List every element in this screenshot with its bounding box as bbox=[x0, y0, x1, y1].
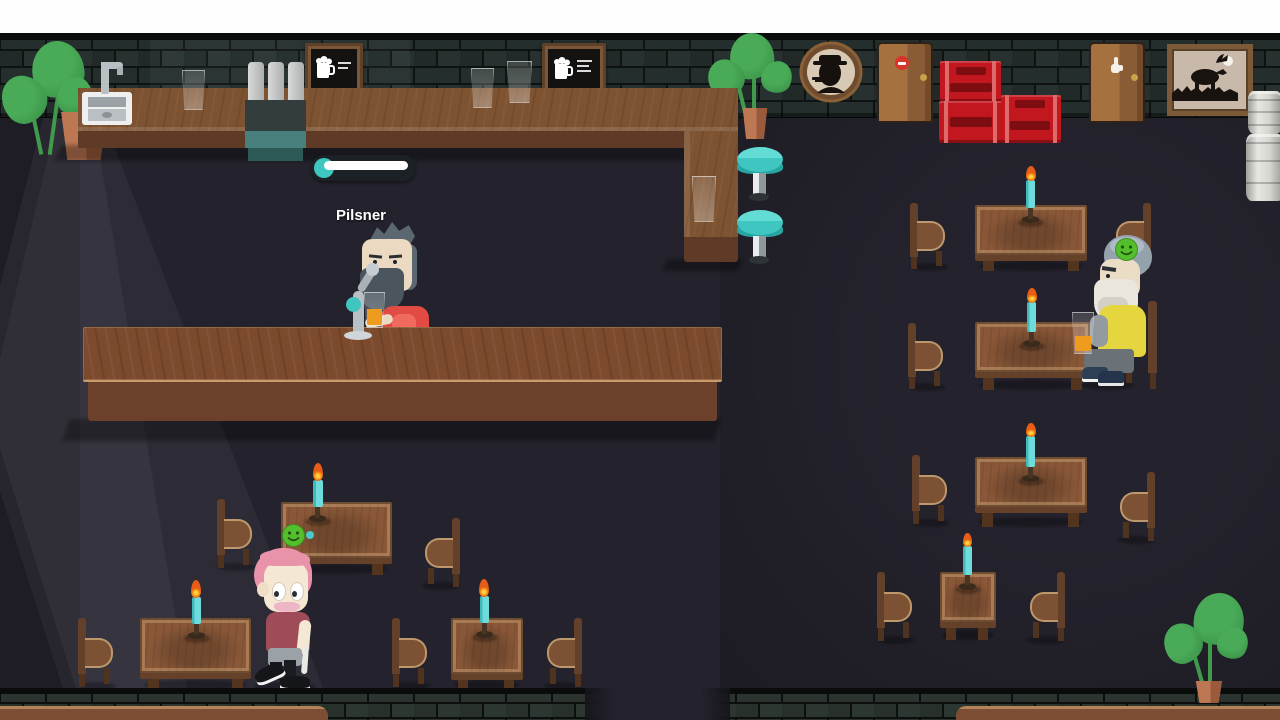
sink-basin-lower bbox=[88, 109, 126, 121]
beer-kegs[interactable] bbox=[1246, 91, 1280, 201]
floor-shade-left bbox=[0, 118, 80, 720]
empty-glass[interactable] bbox=[471, 68, 494, 108]
chair-seat bbox=[1030, 592, 1058, 622]
chair-seat bbox=[915, 341, 943, 371]
game-screen: Pilsner bbox=[0, 0, 1280, 720]
progress-fill bbox=[324, 161, 408, 170]
plant-pot bbox=[741, 108, 769, 139]
chair[interactable] bbox=[908, 323, 946, 391]
customer-beer-glass[interactable] bbox=[1072, 312, 1094, 354]
hand-icon bbox=[1108, 56, 1124, 76]
beer-fill bbox=[1075, 336, 1092, 351]
beer-mug-icon bbox=[552, 56, 574, 82]
chair-seat bbox=[917, 221, 945, 251]
chair-seat bbox=[85, 638, 113, 668]
tap-body bbox=[245, 100, 306, 131]
beer-tap-station[interactable] bbox=[245, 62, 306, 193]
plant-stem bbox=[1208, 639, 1212, 687]
chair[interactable] bbox=[910, 203, 948, 271]
door-restroom[interactable] bbox=[1089, 42, 1145, 123]
candle-flame bbox=[1026, 166, 1036, 181]
chair-seat bbox=[547, 638, 575, 668]
tap-base-lower bbox=[248, 148, 303, 161]
top-bar-return-front bbox=[684, 237, 738, 262]
happy-smiley bbox=[282, 524, 305, 547]
detective-portrait bbox=[799, 41, 863, 103]
empty-glass[interactable] bbox=[507, 61, 532, 103]
candle-flame bbox=[191, 580, 201, 598]
stool-foot bbox=[749, 193, 769, 201]
chair[interactable] bbox=[422, 518, 460, 590]
happy-smiley bbox=[1115, 238, 1138, 261]
customer-mustache bbox=[274, 602, 300, 612]
customer-eye bbox=[290, 582, 304, 601]
moose-silhouette bbox=[1172, 49, 1238, 101]
tap-cylinder bbox=[288, 62, 304, 102]
chair[interactable] bbox=[912, 455, 950, 527]
chair-back bbox=[452, 518, 460, 574]
candle-flame bbox=[1027, 288, 1037, 303]
candle bbox=[472, 579, 498, 641]
bar-stool[interactable] bbox=[737, 210, 783, 266]
pour-progress-bar bbox=[311, 155, 416, 181]
stool-foot bbox=[749, 256, 769, 264]
candle bbox=[1019, 288, 1045, 350]
counter-shadow bbox=[62, 419, 721, 441]
chair-seat bbox=[1120, 492, 1148, 522]
bottom-counter-right bbox=[956, 706, 1280, 720]
beer-crate bbox=[939, 101, 1002, 143]
tap-lever-ball bbox=[366, 263, 379, 276]
top-bar-counter[interactable] bbox=[78, 88, 738, 131]
chair-seat bbox=[425, 538, 453, 568]
customer-ear bbox=[257, 582, 269, 597]
drain bbox=[102, 112, 112, 118]
bar-room: Pilsner bbox=[0, 33, 1280, 720]
tap-foot bbox=[344, 331, 372, 340]
bartender-eye bbox=[393, 260, 397, 264]
chair-back bbox=[574, 618, 582, 674]
customer-hair-fringe bbox=[260, 550, 310, 566]
sink[interactable] bbox=[82, 92, 132, 125]
stool-top bbox=[737, 210, 783, 235]
customer-shoe bbox=[280, 676, 310, 688]
bar-stool[interactable] bbox=[737, 147, 783, 203]
stool-top bbox=[737, 147, 783, 172]
customer-cane bbox=[301, 646, 309, 674]
chair-seat bbox=[399, 638, 427, 668]
candle bbox=[305, 463, 331, 525]
customer-eye bbox=[1106, 274, 1110, 278]
tap-cylinder bbox=[248, 62, 264, 102]
chair[interactable] bbox=[1117, 472, 1155, 544]
bubble-dot bbox=[306, 531, 314, 539]
sign-text bbox=[338, 62, 351, 64]
beer-crate bbox=[940, 61, 1001, 102]
pouring-glass[interactable] bbox=[364, 292, 385, 328]
faucet bbox=[99, 62, 127, 94]
chair-back bbox=[1147, 472, 1155, 528]
chair[interactable] bbox=[544, 618, 582, 690]
door-knob bbox=[1131, 74, 1138, 81]
no-entry-icon bbox=[895, 56, 909, 70]
chair[interactable] bbox=[1027, 572, 1065, 644]
beer-mug-icon bbox=[314, 55, 336, 81]
candle-flame bbox=[1026, 423, 1036, 437]
candle bbox=[1018, 423, 1044, 485]
sign-board bbox=[548, 49, 600, 93]
service-counter[interactable] bbox=[83, 327, 722, 382]
sink-basin bbox=[88, 97, 126, 107]
beer-crates[interactable] bbox=[939, 61, 1063, 175]
chair-seat bbox=[919, 475, 947, 505]
plant-pot bbox=[1194, 681, 1224, 703]
customer-shoe bbox=[1098, 371, 1124, 383]
sign-text bbox=[338, 67, 348, 69]
beer-crate bbox=[1001, 95, 1061, 143]
top-bar-front bbox=[78, 131, 684, 148]
keg bbox=[1246, 134, 1280, 201]
chair-seat bbox=[224, 519, 252, 549]
candle-flame bbox=[479, 579, 489, 597]
chair-seat bbox=[884, 592, 912, 622]
empty-glass[interactable] bbox=[182, 70, 205, 110]
customer-eye bbox=[272, 582, 286, 601]
door-staff[interactable] bbox=[877, 42, 933, 123]
sign-text bbox=[577, 65, 589, 67]
plant-bottom-right bbox=[1160, 593, 1260, 705]
walking-customer[interactable] bbox=[250, 548, 326, 690]
tap-knob bbox=[346, 297, 361, 312]
chair[interactable] bbox=[78, 618, 116, 690]
door-knob bbox=[920, 74, 927, 81]
tap-cylinder bbox=[268, 62, 284, 102]
letterbox-top bbox=[0, 0, 1280, 33]
keg bbox=[1248, 91, 1280, 134]
candle bbox=[184, 580, 210, 642]
service-counter-front bbox=[88, 382, 717, 421]
tap-base bbox=[245, 131, 306, 148]
chair[interactable] bbox=[877, 572, 915, 644]
candle-flame bbox=[963, 533, 972, 547]
sign-text bbox=[577, 70, 591, 72]
chair-back bbox=[1057, 572, 1065, 628]
candle bbox=[955, 533, 981, 593]
beer-fill bbox=[367, 309, 383, 325]
chair[interactable] bbox=[392, 618, 430, 690]
empty-glass[interactable] bbox=[692, 176, 716, 222]
sign-text bbox=[577, 60, 592, 62]
sign-board bbox=[311, 49, 357, 92]
moose-painting bbox=[1167, 44, 1253, 116]
corridor-gap[interactable] bbox=[585, 688, 730, 720]
candle bbox=[1018, 166, 1044, 226]
bottom-counter-left bbox=[0, 706, 328, 720]
candle-flame bbox=[313, 463, 323, 481]
